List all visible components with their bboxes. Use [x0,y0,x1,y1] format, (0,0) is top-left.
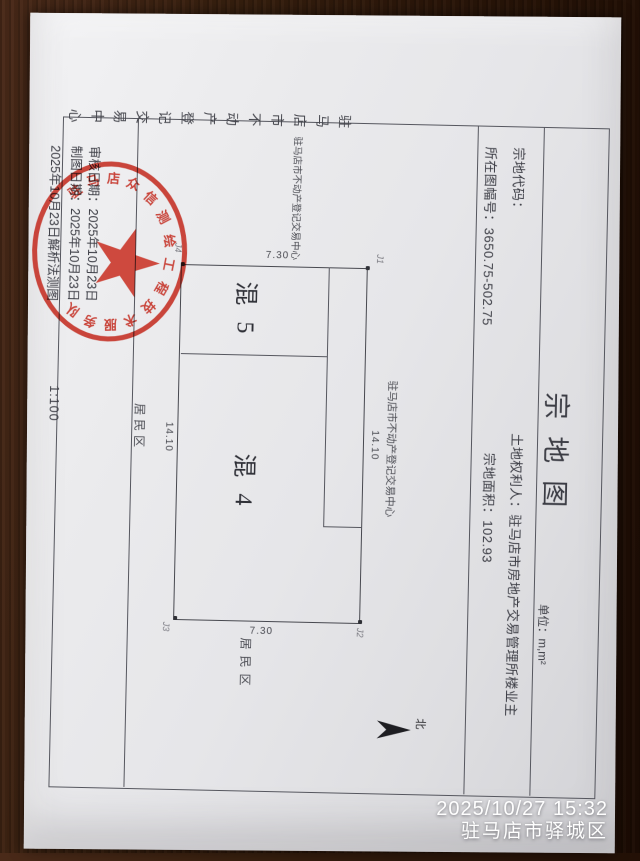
red-seal: 驻马店众信测绘工程技术服务队 报告专用章 [30,160,189,343]
corner-point-j1 [366,266,370,270]
corner-label-j1: J1 [375,254,385,264]
seal-arc-char: 店 [107,168,121,188]
north-label: 北 [413,718,429,729]
dimension-bottom: 14.10 [163,422,175,452]
map-sheet-label: 所在图幅号： [482,147,499,228]
area-field: 宗地面积：102.93 [478,453,499,564]
owner-value: 驻马店市房地产交易管理所楼业主 [503,514,522,717]
timestamp-location: 驻马店市驿城区 [436,822,608,843]
parcel-code-label: 宗地代码： [510,147,526,215]
seal-arc-char: 绘 [160,233,181,249]
map-sheet-field: 所在图幅号：3650.75-502.75 [479,147,502,326]
page-title: 宗地图 [536,392,578,525]
timestamp-datetime: 2025/10/27 15:32 [436,798,608,820]
neighbor-label-top: 驻马店市不动产登记交易中心 [382,381,400,518]
corner-point-j3 [173,616,177,620]
neighbor-label-bottom: 居民区 [131,403,149,451]
parcel-map-document: 宗地图 单位：m,m² 宗地代码： 所在图幅号：3650.75-502.75 土… [12,13,620,861]
parcel-code-field: 宗地代码： [509,147,529,215]
corner-label-j3: J3 [161,622,171,632]
seal-arc-char: 服 [104,316,118,335]
paper-sheet: 宗地图 单位：m,m² 宗地代码： 所在图幅号：3650.75-502.75 土… [24,13,622,854]
dimension-left: 7.30 [266,250,290,262]
dimension-top: 14.10 [369,430,381,460]
neighbor-label-right: 居民区 [237,637,255,691]
corner-point-j2 [358,620,362,624]
neighbor-label-left: 驻马店市不动产登记交易中心 [289,136,306,260]
map-sheet-value: 3650.75-502.75 [480,228,497,326]
region-label-hun4: 混 4 [228,453,264,511]
dimension-right: 7.30 [249,626,273,638]
map-scale: 1:100 [46,385,61,422]
area-value: 102.93 [479,520,495,563]
unit-label: 单位：m,m² [534,604,551,665]
parcel-boundary [173,264,368,624]
photo-of-parcel-map: { "colors":{"seal_red":"#c5352a","paper"… [0,0,640,853]
owner-label: 土地权利人： [507,433,524,514]
corner-label-j2: J2 [355,628,365,638]
area-label: 宗地面积： [480,453,496,521]
region-label-hun5: 混 5 [230,281,266,339]
camera-timestamp: 2025/10/27 15:32 驻马店市驿城区 [436,798,608,843]
